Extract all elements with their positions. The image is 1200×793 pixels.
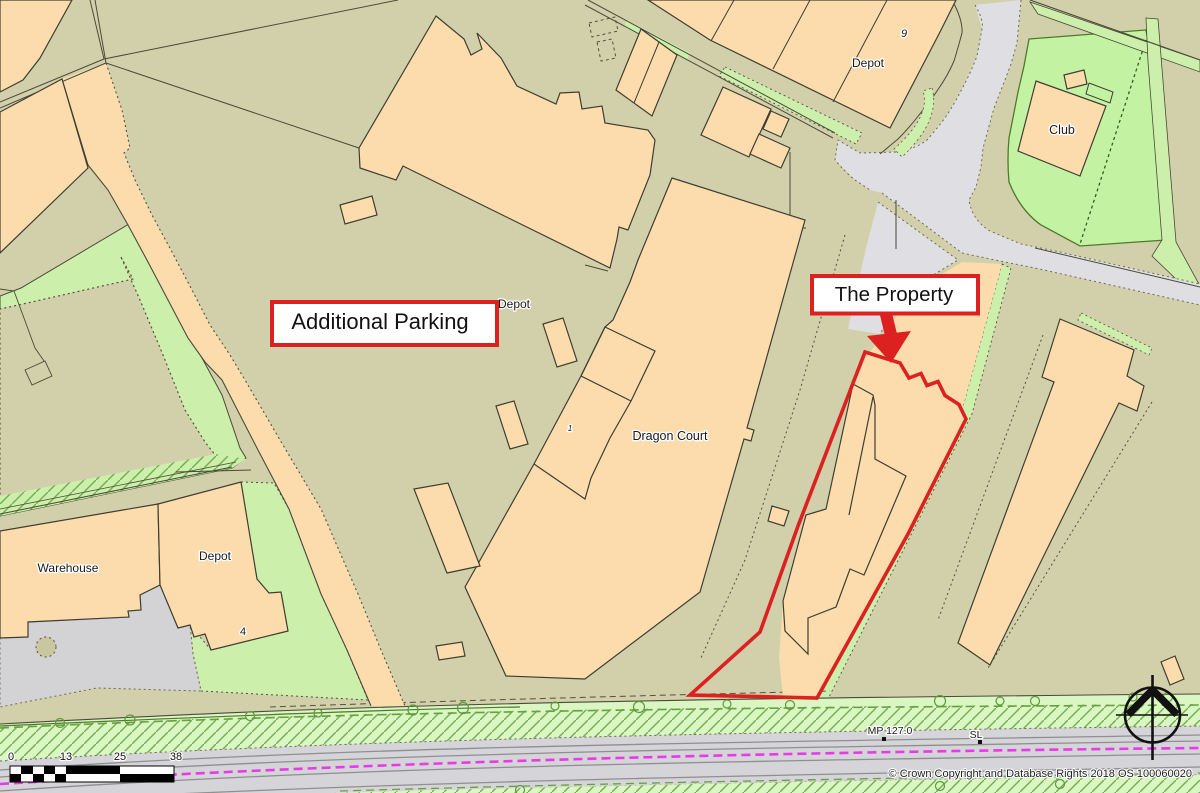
svg-text:© Crown Copyright and Database: © Crown Copyright and Database Rights 20… (889, 768, 1192, 780)
svg-text:The Property: The Property (835, 283, 954, 306)
svg-text:Warehouse: Warehouse (38, 561, 99, 575)
svg-text:1: 1 (568, 423, 573, 433)
svg-text:13: 13 (60, 751, 72, 763)
svg-text:Depot: Depot (498, 297, 531, 311)
svg-text:MP 127.0: MP 127.0 (868, 725, 913, 737)
svg-text:0: 0 (8, 751, 14, 763)
svg-text:38: 38 (170, 751, 182, 763)
svg-text:Depot: Depot (852, 56, 885, 70)
svg-text:Additional Parking: Additional Parking (291, 309, 468, 334)
svg-text:Depot: Depot (199, 549, 232, 563)
svg-text:SL: SL (970, 729, 983, 741)
svg-text:Dragon Court: Dragon Court (632, 429, 708, 443)
svg-text:9: 9 (901, 28, 907, 40)
svg-text:Club: Club (1049, 123, 1075, 137)
svg-text:4: 4 (240, 626, 246, 638)
svg-text:25: 25 (114, 751, 126, 763)
